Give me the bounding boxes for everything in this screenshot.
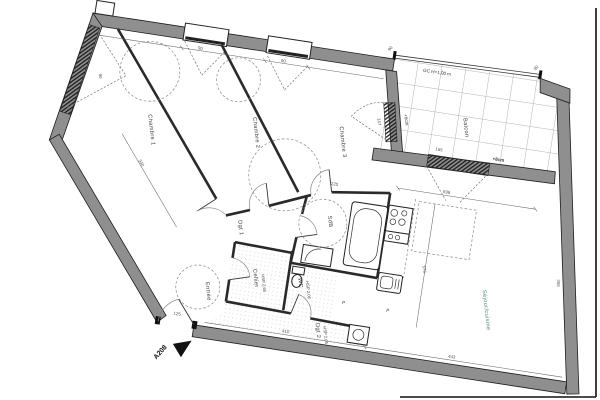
dim-220: 220: [331, 181, 340, 187]
window-chambre1: [59, 22, 100, 117]
washer: [347, 324, 369, 345]
label-guardrail: GC H=1,00 m: [423, 68, 452, 77]
dim-147: 147: [376, 118, 382, 126]
floor-plan-page: Chambre 1 Chambre 2 Chambre 3 Balcon Séj…: [0, 0, 600, 400]
unit-number-label: A208: [153, 344, 169, 361]
room-label-sejour-cuisine: Séjour/cuisine: [481, 290, 491, 331]
stove: [385, 205, 413, 234]
plan-rotated-group: Chambre 1 Chambre 2 Chambre 3 Balcon Séj…: [19, 0, 600, 400]
entrance-marker: A208: [152, 335, 192, 365]
door-chambre1: [197, 196, 216, 213]
room-label-entree: Entrée: [204, 282, 212, 301]
room-label-wc: WC: [296, 278, 303, 289]
dim-358: 358: [556, 279, 561, 287]
entrance-arrow-icon: [171, 338, 192, 359]
windows: [59, 6, 503, 178]
table-dashed: [412, 202, 477, 260]
room-label-chambre1: Chambre 1: [146, 114, 155, 146]
sdb-vanity: [301, 244, 333, 266]
dim-90-win-b: 90: [281, 58, 287, 64]
dim-340: 340: [137, 158, 145, 167]
dim-90-left: 90: [98, 73, 103, 79]
room-label-chambre3: Chambre 3: [338, 126, 347, 158]
dim-443: 443: [448, 354, 457, 360]
dim-90-win-a: 90: [198, 45, 204, 51]
dim-90-rail-b: 90: [532, 64, 539, 71]
room-label-chambre2: Chambre 2: [251, 117, 260, 149]
label-placard-2: P: [386, 308, 390, 313]
roof-duct: [95, 0, 115, 16]
dim-698: 698: [443, 189, 452, 195]
dim-576: 576: [422, 265, 428, 273]
label-level-plus8: +8cm: [492, 156, 505, 163]
dim-125: 125: [173, 311, 182, 317]
door-chambre2: [263, 183, 272, 206]
door-sdb: [296, 231, 317, 240]
dim-90-rail-a: 90: [387, 45, 394, 52]
label-level-plus6: +6cm: [403, 114, 409, 126]
balcony-railing: [392, 48, 542, 83]
toilet: [292, 266, 305, 275]
floor-plan-canvas: Chambre 1 Chambre 2 Chambre 3 Balcon Séj…: [0, 0, 600, 400]
label-placard-1: P: [342, 300, 346, 305]
dim-155: 155: [435, 146, 444, 152]
room-label-sdb: SdB: [326, 215, 333, 227]
room-label-dgt1: Dgt 1: [236, 220, 244, 236]
balcony-glazed-door: [427, 154, 490, 175]
room-label-balcon: Balcon: [461, 118, 469, 138]
